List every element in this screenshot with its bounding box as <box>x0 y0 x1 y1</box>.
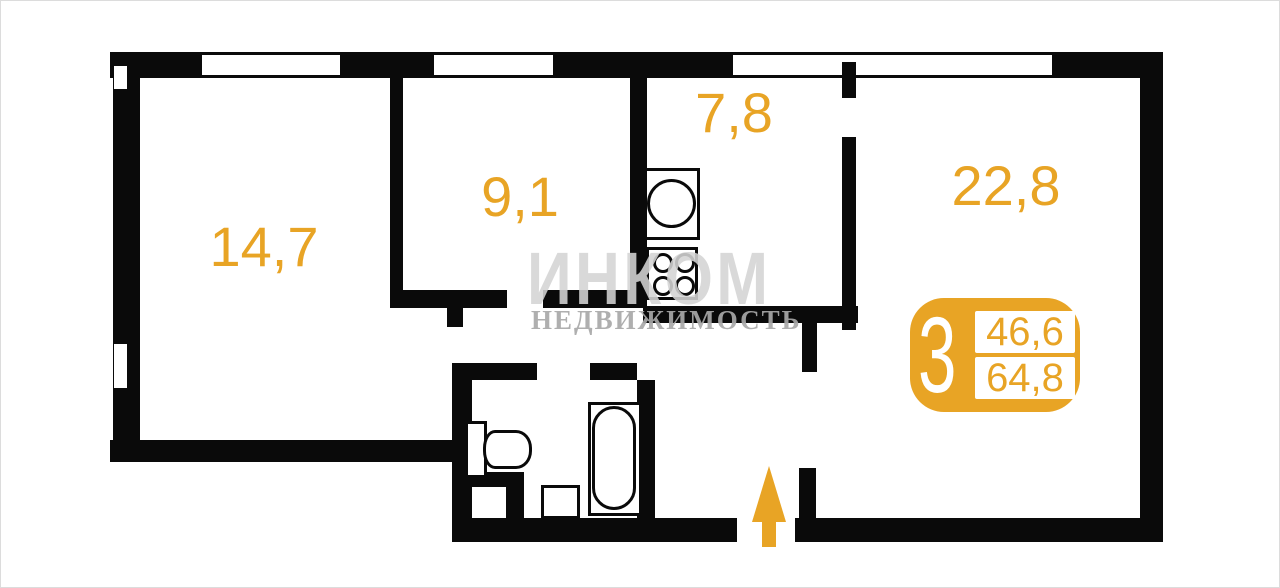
floor-plan: ИНКОМ НЕДВИЖИМОСТЬ 14,7 9,1 7,8 22,8 3 4… <box>0 0 1280 588</box>
kitchen-sink-icon <box>644 168 700 240</box>
room-label-22-8: 22,8 <box>952 158 1061 214</box>
wall-segment <box>452 518 737 542</box>
entrance-arrow-icon <box>752 466 786 522</box>
wall-segment <box>795 518 1163 542</box>
wall-segment <box>113 52 140 462</box>
room-label-9-1: 9,1 <box>481 169 559 225</box>
area-badge: 3 46,6 64,8 <box>910 298 1080 412</box>
room-label-14-7: 14,7 <box>210 219 319 275</box>
wall-segment <box>802 322 817 372</box>
wall-segment <box>110 440 452 462</box>
wall-niche <box>114 64 127 91</box>
bathtub-inner-icon <box>592 406 636 510</box>
washbasin-icon <box>541 485 580 519</box>
rooms-count: 3 <box>918 305 956 405</box>
window <box>733 52 1052 78</box>
living-area-value: 46,6 <box>975 311 1075 353</box>
window <box>434 52 553 78</box>
wall-segment <box>447 298 463 327</box>
total-area-value: 64,8 <box>975 357 1075 399</box>
room-label-7-8: 7,8 <box>695 85 773 141</box>
sink-bowl-icon <box>647 179 696 228</box>
wall-segment <box>340 52 434 78</box>
toilet-bowl-icon <box>483 430 532 469</box>
wall-segment <box>390 70 403 297</box>
window <box>202 52 340 78</box>
entrance-arrow-stem <box>762 518 776 547</box>
wall-segment <box>1140 52 1163 542</box>
wall-segment <box>842 62 856 98</box>
bathtub-icon <box>588 402 642 516</box>
wall-segment <box>842 137 856 330</box>
wall-segment <box>799 468 816 523</box>
wall-niche <box>114 342 127 390</box>
wall-segment <box>506 487 524 520</box>
watermark-tagline: НЕДВИЖИМОСТЬ <box>531 307 801 334</box>
wall-segment <box>590 363 637 380</box>
